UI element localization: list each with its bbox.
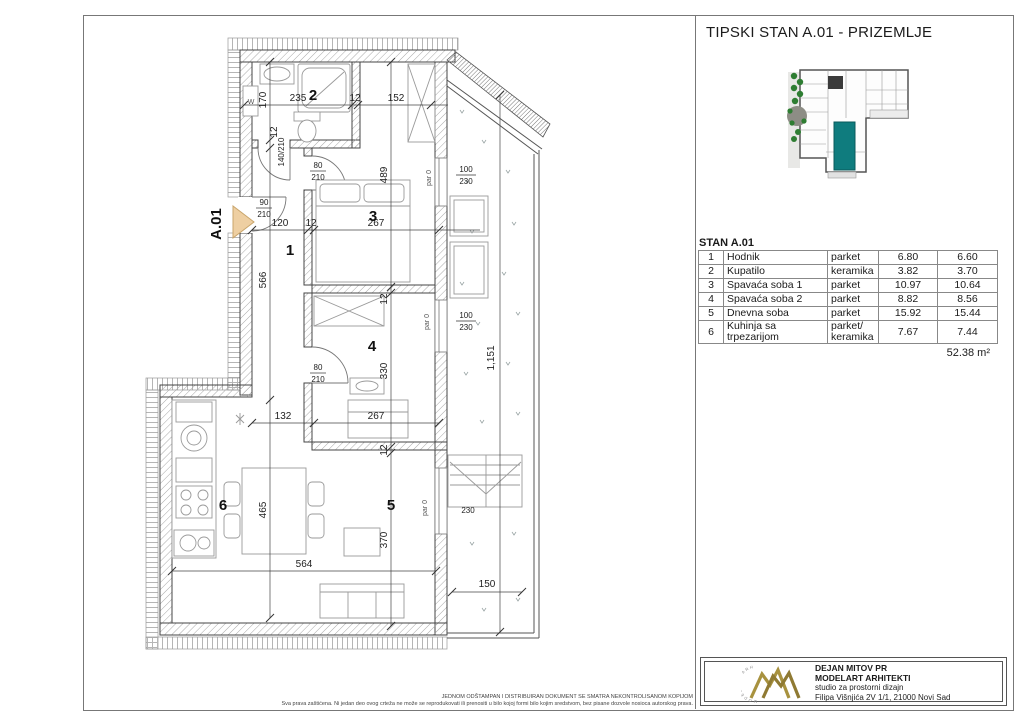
bed-room3 [316, 180, 410, 282]
svg-text:566: 566 [258, 271, 269, 288]
svg-text:12: 12 [379, 444, 390, 456]
svg-text:4: 4 [368, 338, 377, 355]
svg-text:210: 210 [311, 173, 325, 182]
svg-text:150: 150 [479, 579, 496, 590]
dining-table [224, 468, 324, 554]
svg-text:par 0: par 0 [424, 314, 431, 330]
svg-text:MODELART ARHITEKTI: MODELART ARHITEKTI [741, 662, 757, 703]
table-row: 6 Kuhinja sa trpezarijom parket/ keramik… [699, 321, 998, 344]
svg-text:564: 564 [296, 559, 313, 570]
entrance-unit-label: A.01 [208, 208, 225, 240]
table-row: 5 Dnevna soba parket 15.92 15.44 [699, 307, 998, 321]
svg-text:1: 1 [286, 242, 294, 259]
table-row: 3 Spavaća soba 1 parket 10.97 10.64 [699, 279, 998, 293]
terrace-stairs [448, 455, 522, 507]
wardrobe [314, 296, 384, 326]
area-table-block: STAN A.01 1 Hodnik parket 6.80 6.60 2 Ku… [698, 237, 998, 359]
svg-text:489: 489 [379, 166, 390, 183]
table-row: 1 Hodnik parket 6.80 6.60 [699, 251, 998, 265]
table-row: 4 Spavaća soba 2 parket 8.82 8.56 [699, 293, 998, 307]
total-area: 52.38 m² [698, 344, 998, 359]
svg-text:par 0: par 0 [422, 500, 429, 516]
svg-text:230: 230 [459, 323, 473, 332]
svg-text:6: 6 [219, 497, 227, 514]
svg-text:267: 267 [368, 411, 385, 422]
svg-text:235: 235 [290, 93, 307, 104]
table-title: STAN A.01 [699, 237, 998, 249]
svg-text:3: 3 [369, 208, 377, 225]
modelart-logo-icon: MODELART ARHITEKTI [741, 662, 807, 703]
svg-text:465: 465 [258, 501, 269, 518]
svg-text:210: 210 [257, 210, 271, 219]
svg-text:132: 132 [275, 411, 292, 422]
svg-text:5: 5 [387, 497, 395, 514]
legal-fineprint: JEDNOM ODŠTAMPAN I DISTRIBUIRAN DOKUMENT… [250, 694, 693, 707]
svg-text:80: 80 [314, 161, 323, 170]
title-block: MODELART ARHITEKTI DEJAN MITOV PR MODELA… [700, 657, 1007, 706]
site-plan-thumbnail [770, 60, 928, 196]
highlighted-unit [834, 122, 855, 170]
svg-text:12: 12 [349, 93, 361, 104]
living-furniture [320, 528, 404, 618]
svg-text:140/210: 140/210 [277, 137, 286, 166]
svg-text:120: 120 [272, 218, 289, 229]
company-address: Filipa Višnjića 2V 1/1, 21000 Novi Sad [815, 693, 951, 703]
table-row: 2 Kupatilo keramika 3.82 3.70 [699, 265, 998, 279]
title-block-inner: MODELART ARHITEKTI DEJAN MITOV PR MODELA… [704, 661, 1003, 702]
shaft [408, 64, 435, 142]
page-title: TIPSKI STAN A.01 - PRIZEMLJE [706, 24, 1006, 41]
fineprint-line2: Sva prava zaštićena. Ni jedan deo ovog c… [250, 701, 693, 708]
svg-text:80: 80 [314, 363, 323, 372]
svg-text:170: 170 [258, 91, 269, 108]
svg-text:par 0: par 0 [426, 170, 433, 186]
svg-text:W: W [248, 99, 255, 106]
floor-plan-drawing: A.01 [0, 0, 700, 725]
svg-text:90: 90 [260, 198, 269, 207]
svg-text:12: 12 [305, 218, 317, 229]
company-tagline: studio za prostorni dizajn [815, 683, 951, 693]
svg-text:12: 12 [379, 293, 390, 305]
document-page: A.01 [0, 0, 1024, 725]
terrace-planters [450, 196, 488, 298]
svg-text:210: 210 [311, 375, 325, 384]
svg-text:230: 230 [459, 177, 473, 186]
svg-text:370: 370 [379, 531, 390, 548]
svg-text:100: 100 [459, 311, 473, 320]
svg-text:152: 152 [388, 93, 405, 104]
stairwell-block [828, 76, 843, 89]
svg-text:100: 100 [459, 165, 473, 174]
svg-text:12: 12 [269, 126, 280, 138]
svg-text:330: 330 [379, 362, 390, 379]
svg-text:1,151: 1,151 [486, 345, 497, 370]
svg-text:230: 230 [461, 506, 475, 515]
svg-text:2: 2 [309, 87, 317, 104]
furniture-room4 [348, 378, 408, 438]
room-area-table: 1 Hodnik parket 6.80 6.60 2 Kupatilo ker… [698, 250, 998, 344]
company-studio: MODELART ARHITEKTI [815, 674, 951, 684]
